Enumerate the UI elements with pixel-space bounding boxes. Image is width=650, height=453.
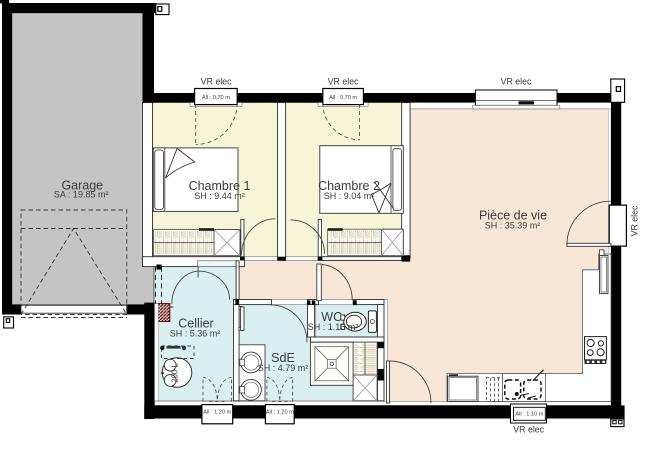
svg-text:VR elec: VR elec (513, 425, 544, 435)
svg-text:200 L: 200 L (171, 363, 180, 383)
svg-text:VR elec: VR elec (201, 77, 232, 87)
svg-text:SH : 4.79 m²: SH : 4.79 m² (258, 363, 309, 373)
svg-text:All : 1.20 m: All : 1.20 m (203, 409, 231, 415)
svg-text:All : 0.70 m: All : 0.70 m (329, 95, 357, 101)
svg-text:SH : 9.44 m²: SH : 9.44 m² (194, 191, 245, 201)
svg-text:SH : 35.39 m²: SH : 35.39 m² (485, 221, 541, 231)
svg-text:VR elec: VR elec (328, 77, 359, 87)
svg-text:SH : 5.36 m²: SH : 5.36 m² (170, 329, 221, 339)
svg-text:VR elec: VR elec (501, 77, 532, 87)
svg-text:All : 0.70 m: All : 0.70 m (202, 95, 230, 101)
svg-text:SA : 19.85 m²: SA : 19.85 m² (54, 190, 109, 200)
svg-text:All : 1.20 m: All : 1.20 m (266, 409, 294, 415)
svg-text:SH : 9.04 m²: SH : 9.04 m² (324, 191, 375, 201)
svg-text:SH : 1.16 m²: SH : 1.16 m² (308, 322, 359, 332)
svg-text:VR elec: VR elec (629, 205, 639, 236)
svg-text:All : 1.10 m: All : 1.10 m (515, 412, 543, 418)
